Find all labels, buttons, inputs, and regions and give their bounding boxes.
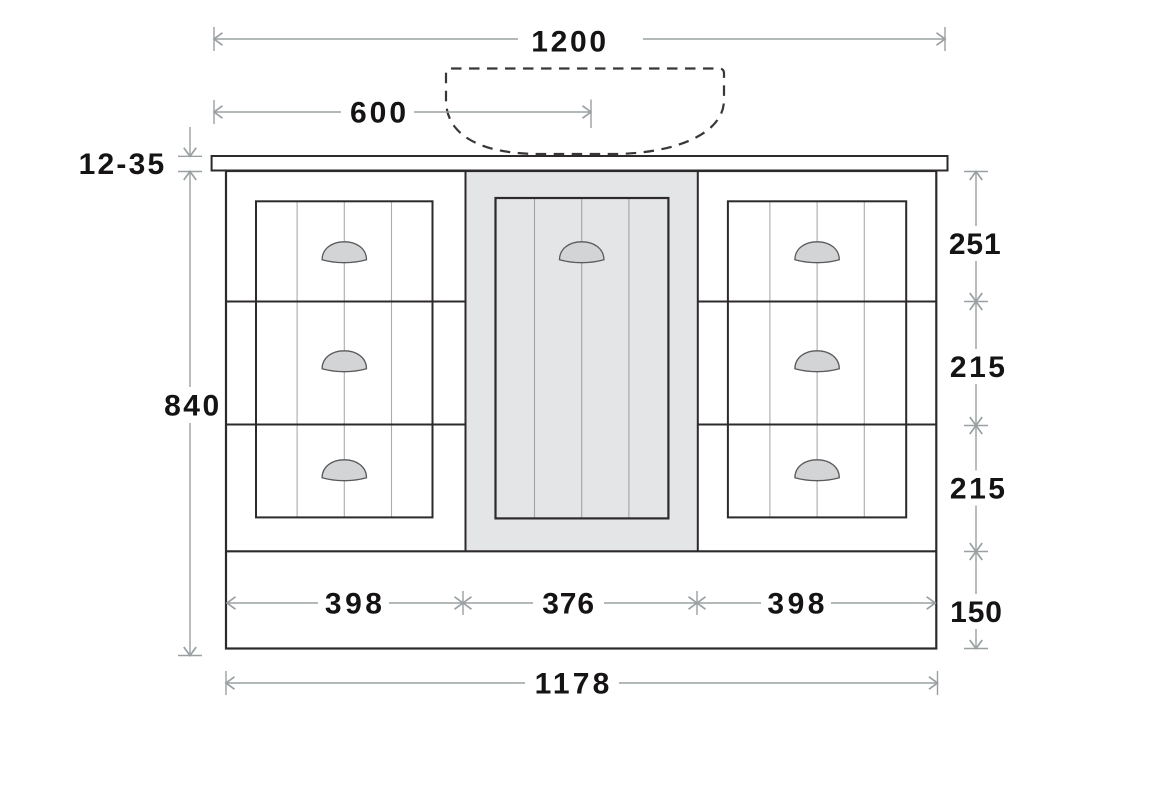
svg-text:840: 840 — [164, 390, 222, 423]
svg-text:398: 398 — [325, 588, 386, 621]
svg-text:600: 600 — [350, 97, 409, 130]
svg-text:215: 215 — [950, 473, 1008, 506]
svg-text:251: 251 — [949, 228, 1002, 261]
svg-text:1200: 1200 — [531, 26, 609, 59]
svg-text:150: 150 — [950, 596, 1003, 629]
svg-text:1178: 1178 — [535, 668, 613, 701]
svg-text:376: 376 — [542, 588, 595, 621]
svg-text:215: 215 — [950, 351, 1008, 384]
svg-text:12-35: 12-35 — [79, 148, 167, 181]
svg-text:398: 398 — [767, 588, 828, 621]
